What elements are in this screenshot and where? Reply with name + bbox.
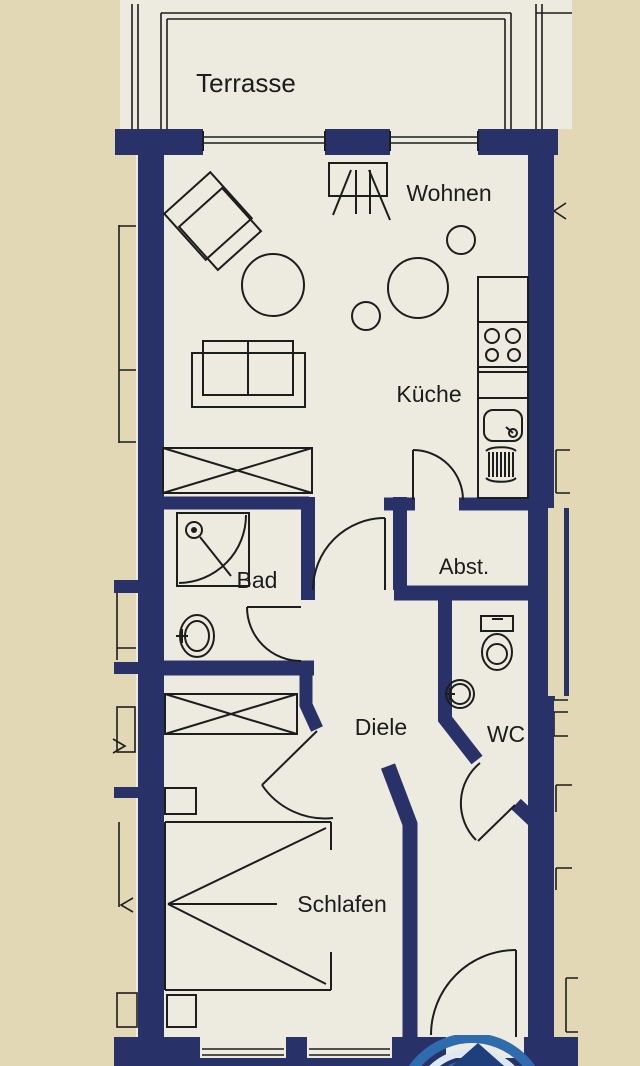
right-wall-recess: [548, 508, 564, 696]
room-label-terrasse: Terrasse: [196, 68, 296, 98]
wall-left: [138, 155, 164, 1039]
wall-top-left-block: [115, 129, 203, 155]
room-label-schlafen: Schlafen: [297, 891, 387, 917]
room-label-wc: WC: [487, 721, 525, 747]
room-label-kueche: Küche: [396, 381, 461, 407]
room-label-bad: Bad: [237, 567, 278, 593]
wall-top-right-block: [478, 129, 558, 155]
wall-stub-left-1: [114, 580, 140, 593]
room-label-diele: Diele: [355, 714, 407, 740]
room-label-wohnen: Wohnen: [406, 180, 491, 206]
floor-plan-drawing: Terrasse Wohnen Küche Bad Abst. Diele WC…: [0, 0, 640, 1066]
right-wall-recess-border: [564, 508, 569, 696]
wall-stub-left-2: [114, 662, 140, 674]
wall-top-mid-block: [325, 129, 390, 155]
floor-plan-page: Terrasse Wohnen Küche Bad Abst. Diele WC…: [0, 0, 640, 1066]
room-label-abstellraum: Abst.: [439, 554, 489, 579]
wall-stub-left-3: [114, 787, 140, 798]
